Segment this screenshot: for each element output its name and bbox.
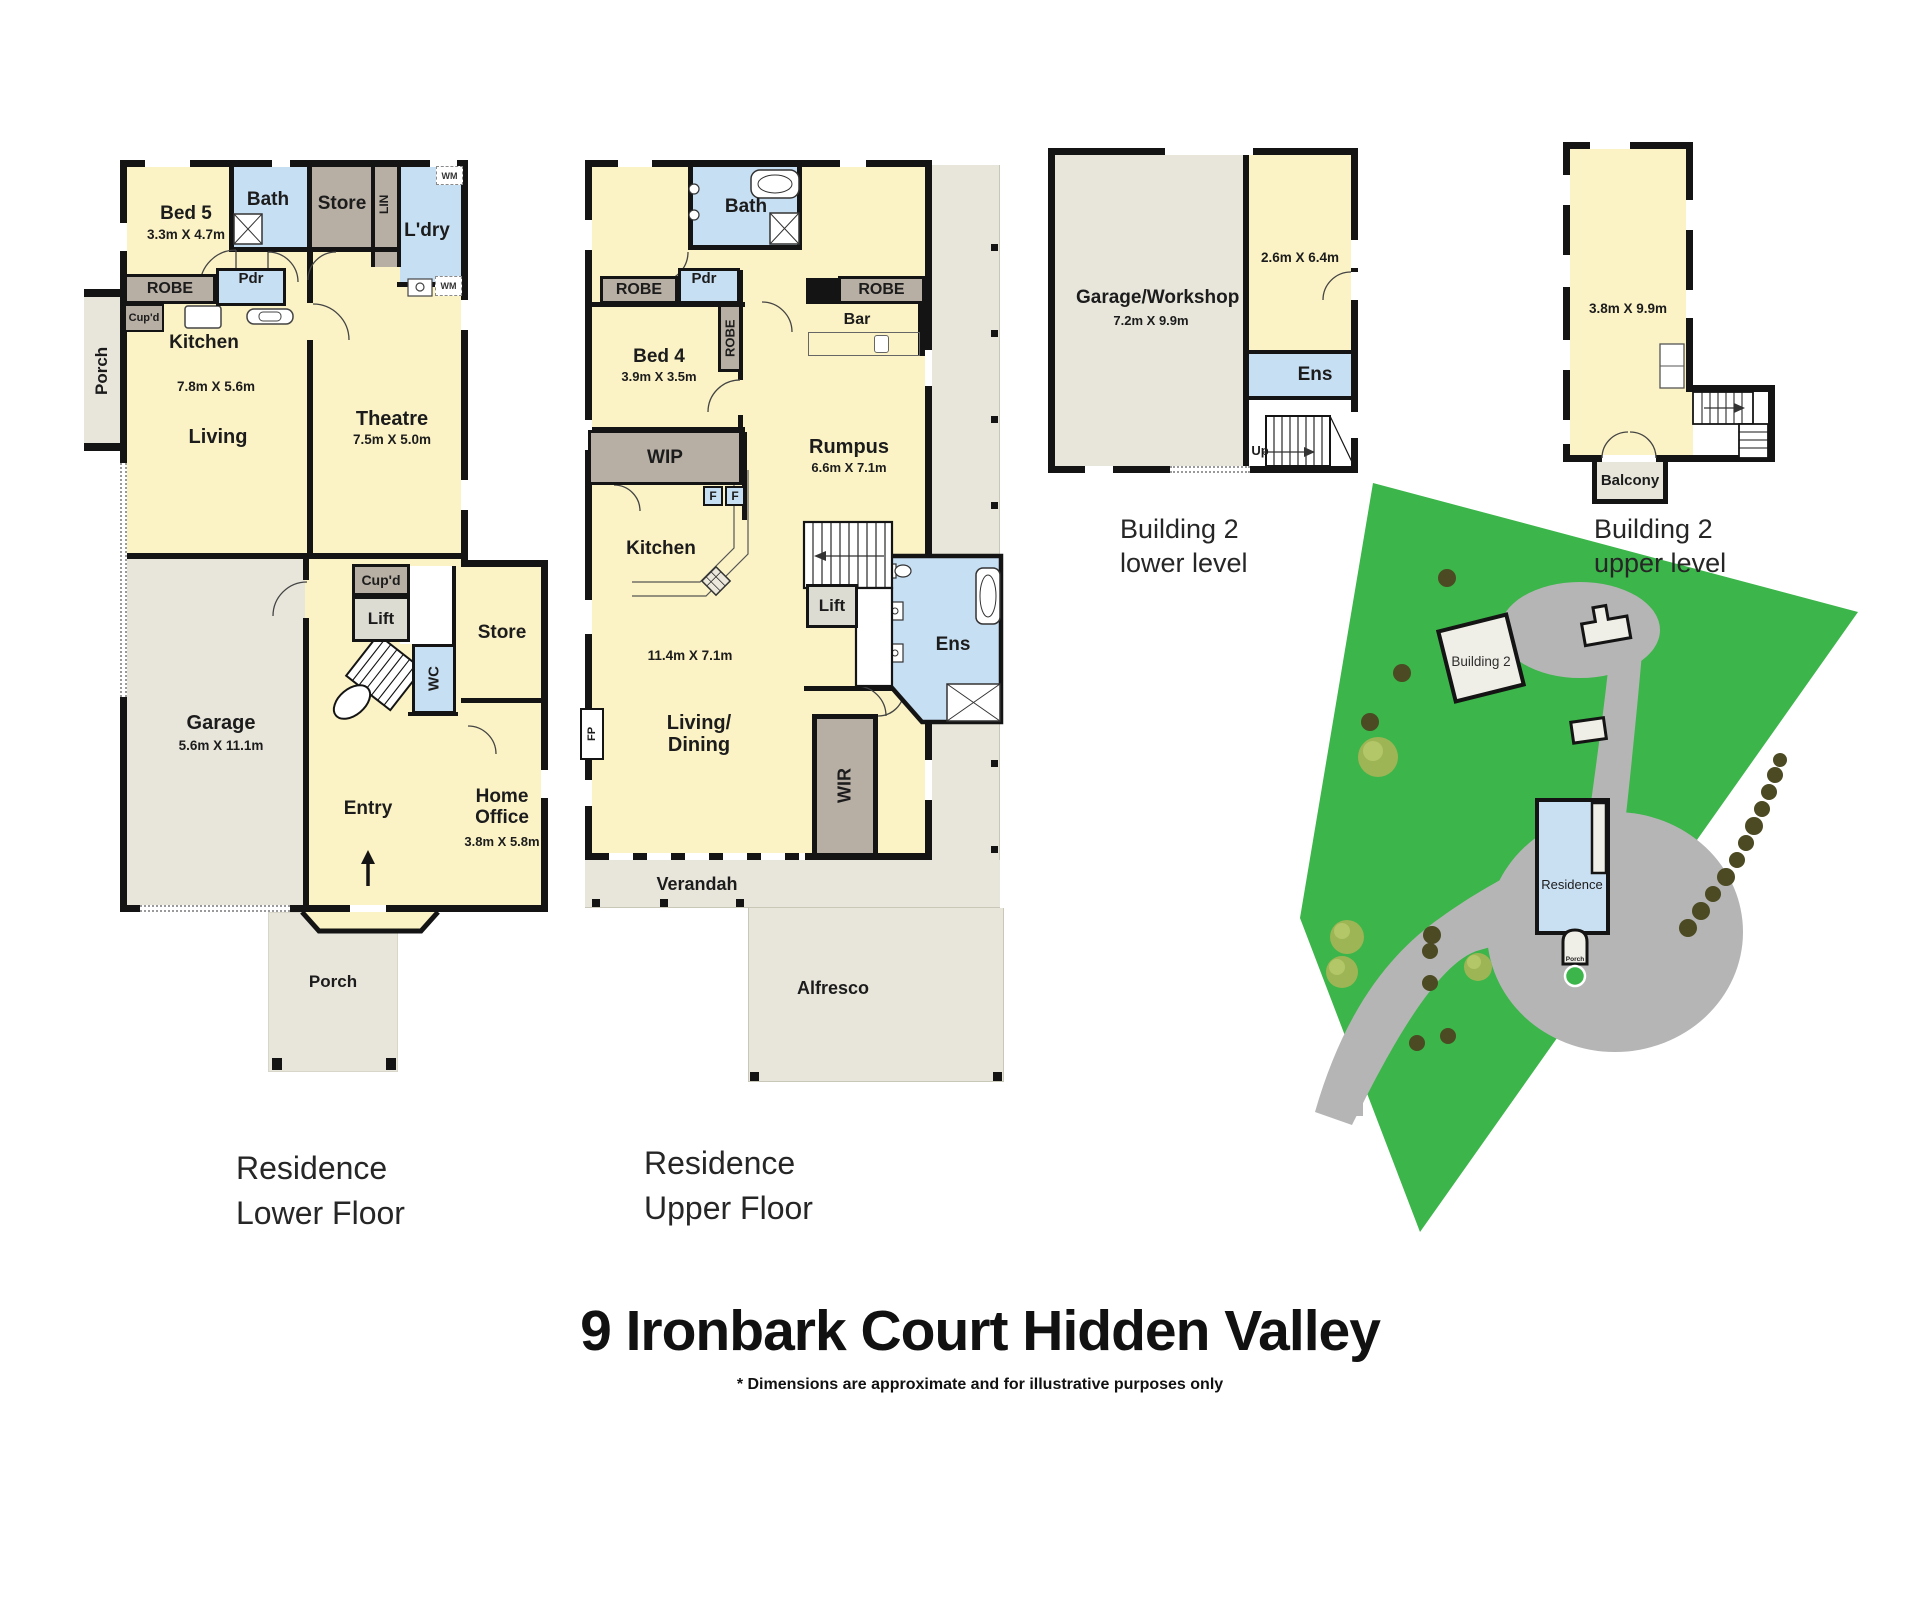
washing-machine-icon: WM [435,276,462,296]
garage-workshop-dim: 7.2m X 9.9m [1101,313,1201,328]
lift-cab: Lift [352,596,410,642]
powder-label: Pdr [231,271,271,288]
alfresco-label: Alfresco [789,978,877,998]
site-plan: Building 2 Residence Porch [1280,470,1880,1260]
fireplace: FP [580,708,604,760]
window [1563,420,1570,444]
wall [1686,455,1775,462]
wall [1686,385,1775,392]
living-label: Living [180,426,256,448]
robe-closet: ROBE [838,276,925,304]
area-dim: 11.4m X 7.1m [644,648,736,663]
building2-upper-caption: Building 2 upper level [1594,512,1824,580]
disclaimer: * Dimensions are approximate and for ill… [40,1376,1920,1394]
store-mid-label: Store [466,622,538,643]
linen-label: LIN [378,178,396,230]
building2-lower-caption: Building 2 lower level [1120,512,1350,580]
home-office-dim: 3.8m X 5.8m [454,834,550,849]
ens-label: Ens [929,634,977,655]
window [1563,340,1570,370]
bath-label: Bath [242,189,294,210]
fridge-space: F [725,486,745,506]
store-label: Store [314,193,370,214]
laundry-label: L'dry [400,220,454,241]
site-porch-label: Porch [1566,956,1584,963]
home-office-label: Home Office [461,786,543,829]
ens-label: Ens [1290,364,1340,385]
lift-cab: Lift [806,584,858,628]
cupboard-closet: Cup'd [124,304,164,332]
site-building2-label: Building 2 [1451,654,1510,669]
powder-label: Pdr [684,271,724,288]
theatre-dim: 7.5m X 5.0m [348,432,436,447]
robe-closet: ROBE [718,304,742,372]
bed5-label: Bed 5 [146,203,226,224]
page-title: 9 Ironbark Court Hidden Valley [40,1298,1920,1364]
kitchen-label: Kitchen [168,332,240,353]
fridge-space: F [703,486,723,506]
upper-floor-caption: Residence Upper Floor [644,1141,944,1231]
site-marker [1565,966,1585,986]
stair-annex [1693,392,1768,455]
window [1590,142,1630,149]
front-porch-label: Porch [300,972,366,991]
robe-closet: ROBE [124,274,216,304]
site-outbuilding [1571,718,1607,743]
window [1686,290,1693,318]
living-dim: 7.8m X 5.6m [172,379,260,394]
wall [1768,385,1775,462]
bed4-dim: 3.9m X 3.5m [614,369,704,384]
side-porch-label: Porch [92,336,116,406]
garage-dim: 5.6m X 11.1m [174,738,268,753]
window [1686,200,1693,230]
bar-label: Bar [834,311,880,329]
kitchen-label: Kitchen [624,538,698,559]
robe-closet: ROBE [600,276,678,304]
rumpus-label: Rumpus [809,436,889,458]
walk-in-pantry: WIP [588,430,742,485]
garage-label: Garage [178,712,264,734]
cupboard-closet: Cup'd [352,564,410,596]
garage-workshop-label: Garage/Workshop [1076,287,1226,308]
living-dining-label: Living/ Dining [656,712,742,757]
site-residence-label: Residence [1541,877,1602,892]
bed4-label: Bed 4 [619,346,699,367]
room-dim: 2.6m X 6.4m [1252,250,1348,265]
bath-label: Bath [720,196,772,217]
theatre-label: Theatre [352,408,432,430]
walk-in-robe: WIR [812,714,878,858]
up-label: Up [1246,444,1274,459]
room-dim: 3.8m X 9.9m [1580,301,1676,316]
balcony: Balcony [1592,462,1668,504]
bed5-dim: 3.3m X 4.7m [141,227,231,242]
wc-room: WC [412,644,456,714]
wall [1686,142,1693,392]
window [1563,255,1570,287]
door-opening [1602,455,1656,462]
entry-label: Entry [328,798,408,819]
floorplan-sheet: Porch ROBE Pdr Cup'd Cup'd Lift [0,0,1920,1599]
window [1563,175,1570,205]
rumpus-dim: 6.6m X 7.1m [804,460,894,475]
verandah-label: Verandah [651,874,743,894]
washing-machine-icon: WM [436,166,463,185]
lower-floor-caption: Residence Lower Floor [236,1146,536,1236]
